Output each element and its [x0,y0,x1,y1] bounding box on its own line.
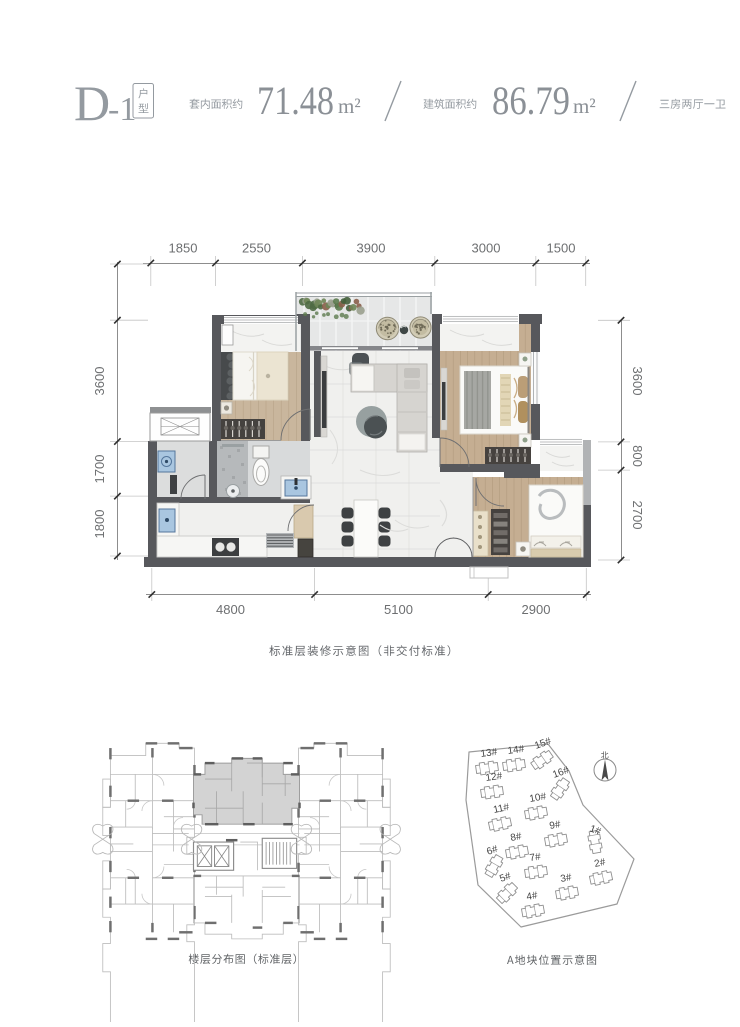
svg-text:800: 800 [630,445,645,467]
svg-text:1700: 1700 [92,455,107,484]
svg-text:m²: m² [573,94,596,118]
svg-text:7#: 7# [529,851,542,864]
svg-text:1500: 1500 [547,241,576,256]
svg-text:2900: 2900 [522,602,551,617]
svg-text:3000: 3000 [472,241,501,256]
svg-text:m²: m² [338,94,361,118]
svg-text:5100: 5100 [384,602,413,617]
svg-text:-1: -1 [108,91,136,128]
svg-text:3600: 3600 [92,367,107,396]
svg-text:D: D [74,75,110,131]
svg-text:86.79: 86.79 [492,78,570,123]
svg-text:4800: 4800 [216,602,245,617]
svg-text:71.48: 71.48 [257,78,334,123]
svg-text:1800: 1800 [92,510,107,539]
svg-text:3600: 3600 [630,367,645,396]
svg-text:1850: 1850 [169,241,198,256]
svg-text:2700: 2700 [630,501,645,530]
svg-text:3900: 3900 [357,241,386,256]
svg-text:2550: 2550 [242,241,271,256]
